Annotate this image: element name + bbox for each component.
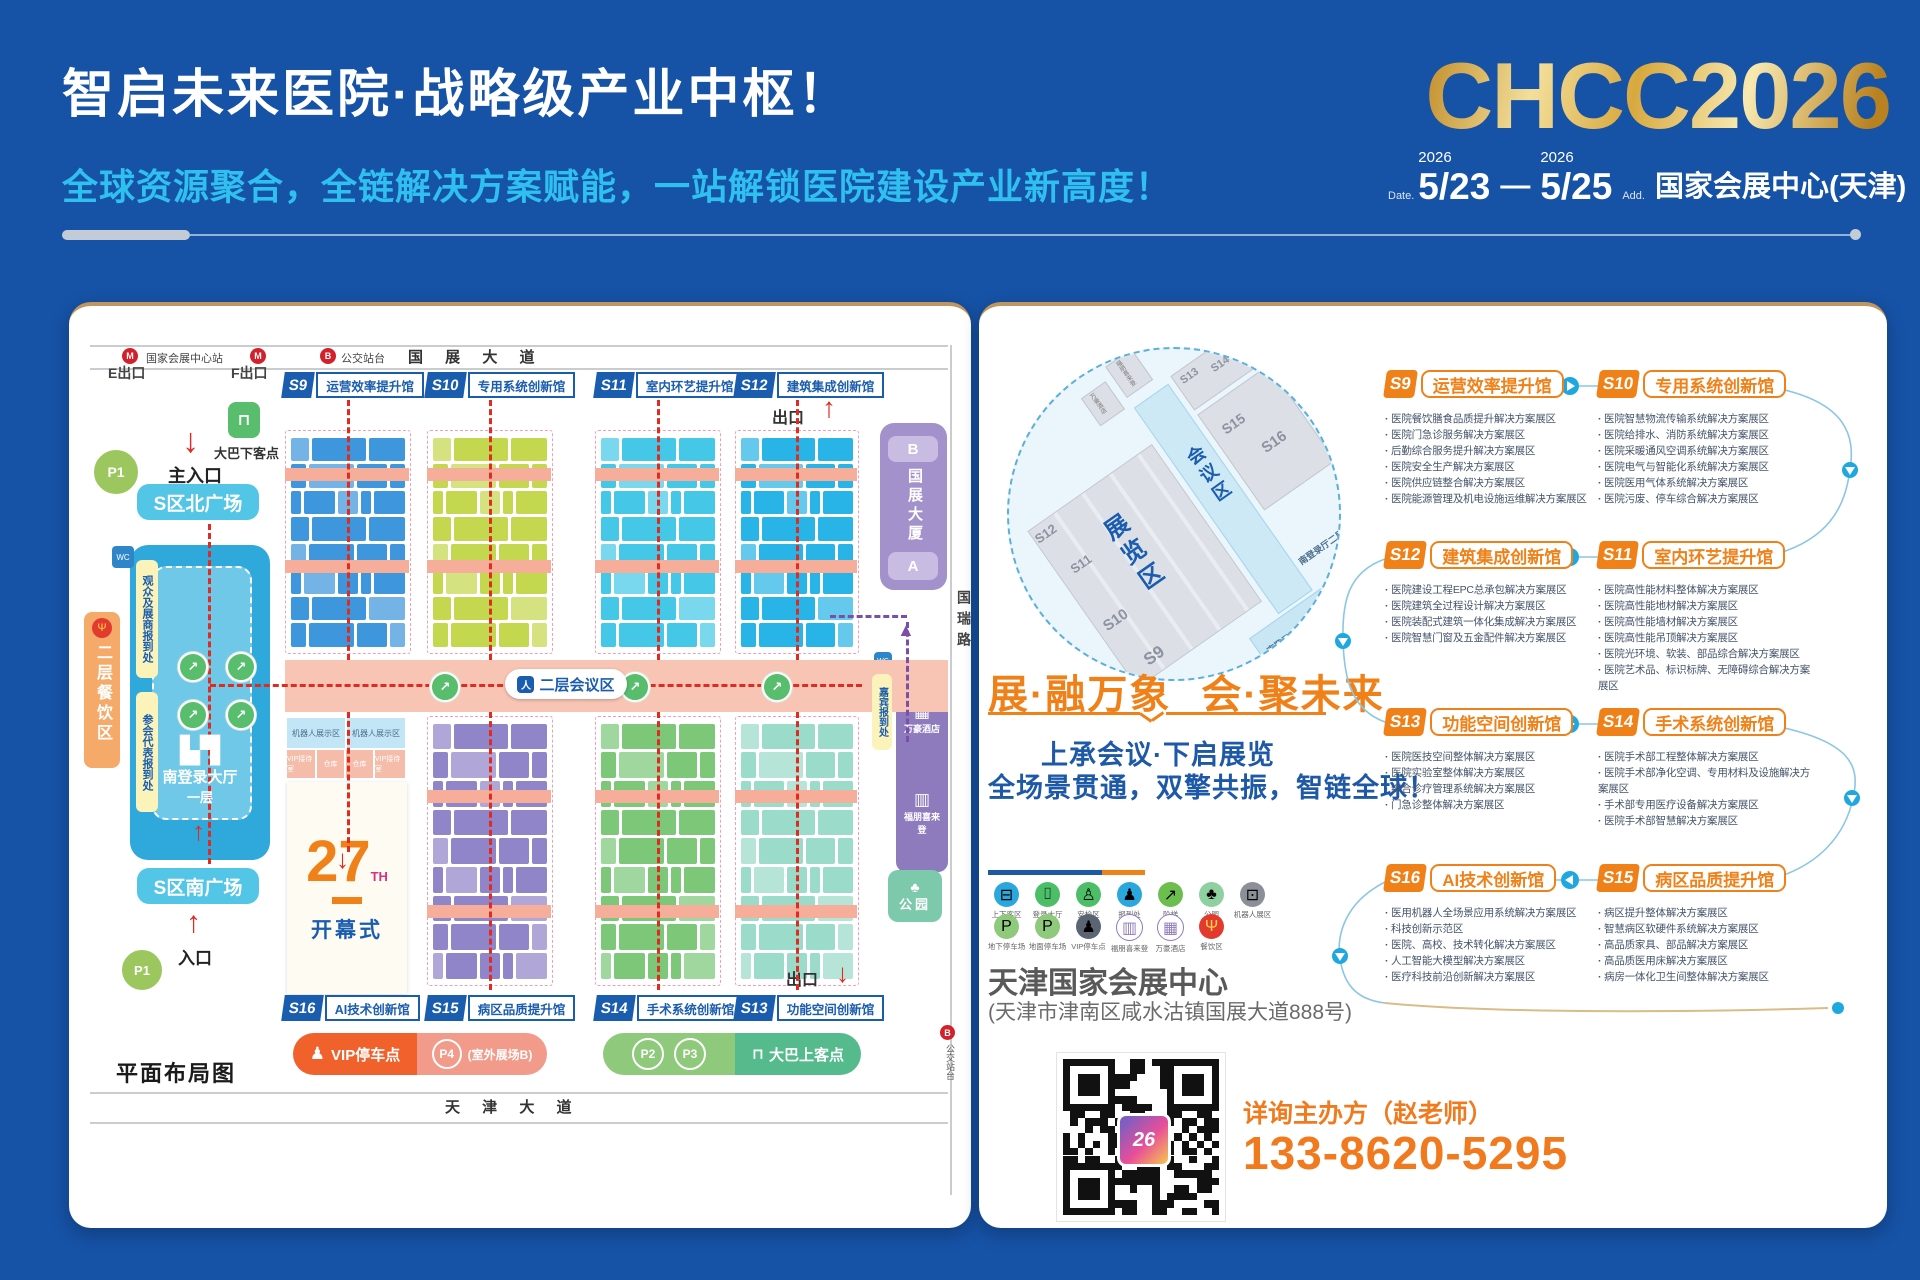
guest-route	[906, 622, 909, 742]
bus-drop-label: 大巴下客点	[214, 443, 279, 462]
toilet-icon: WC	[112, 546, 134, 568]
divider-bar	[62, 230, 190, 240]
escalator-icon: ↗	[226, 652, 256, 682]
route-arrow-up-icon: ↑	[192, 818, 205, 844]
escalator-icon: ↗	[762, 672, 792, 702]
bus-stop-right-label: 公交站台	[944, 1044, 957, 1080]
section-bullet: 医院安全生产解决方案展区	[1385, 459, 1597, 475]
p2-p3-legend: P2 P3	[603, 1033, 735, 1075]
contact-phone: 133-8620-5295	[1243, 1126, 1568, 1180]
vip-parking-icon: ♟	[1076, 914, 1101, 939]
section-bullet: 综合诊疗管理系统解决方案展区	[1385, 781, 1597, 797]
red-route	[796, 400, 799, 660]
section-bullet: 医院高性能吊顶解决方案展区	[1598, 630, 1810, 646]
page-subtitle: 全球资源聚合，全链解决方案赋能，一站解锁医院建设产业新高度！	[62, 158, 1172, 210]
security-check-icon: ♙	[1076, 882, 1101, 907]
south-hall-label: ▙▜ 南登录大厅 一层	[152, 735, 248, 806]
marriott-hotel-icon: ▦	[1157, 914, 1184, 941]
main-entrance-arrow-icon: ↓	[182, 424, 199, 458]
legend-divider-blue	[988, 870, 1102, 875]
section-bullet: 医院建设工程EPC总承包解决方案展区	[1385, 582, 1597, 598]
address-label: Add.	[1622, 190, 1645, 205]
login-hall-icon: ⌷	[1035, 882, 1060, 907]
visitor-checkin-label: 观众及展商报到处	[136, 560, 158, 678]
divider-dot	[1850, 229, 1861, 240]
section-bullet: 医院装配式建筑一体化集成解决方案展区	[1385, 614, 1597, 630]
section-s15: S15病区品质提升馆 病区提升整体解决方案展区智慧病区软硬件系统解决方案展区高品…	[1598, 864, 1810, 985]
date-separator: —	[1500, 169, 1530, 203]
section-bullet: 医院医技空间整体解决方案展区	[1385, 749, 1597, 765]
dining-area-block: Ψ 二层餐饮区	[84, 612, 120, 768]
section-bullet: 医院电气与智能化系统解决方案展区	[1598, 459, 1810, 475]
section-bullet: 医院手术部智慧解决方案展区	[1598, 813, 1810, 829]
opening-label: 开幕式	[311, 914, 383, 944]
pickup-zone-icon: ⊟	[994, 882, 1019, 907]
red-route	[657, 712, 660, 990]
hotel-marriott-label: 万豪酒店	[904, 722, 940, 735]
section-bullet: 医疗科技前沿创新解决方案展区	[1385, 969, 1597, 985]
event-dates: Date. 2026 5/23 — 2026 5/25 Add. 国家会展中心(…	[1388, 150, 1890, 205]
robot-zone-room: 机器人展示区	[287, 718, 345, 748]
escalator-icon: ↗	[178, 652, 208, 682]
hall-label-s14: S14 手术系统创新馆	[595, 995, 744, 1021]
section-bullet: 后勤综合服务提升解决方案展区	[1385, 443, 1597, 459]
section-bullet: 医院高性能地材解决方案展区	[1598, 598, 1810, 614]
entrance-arrow-icon: ↑	[186, 908, 201, 938]
underground-parking-icon: P	[994, 914, 1019, 939]
red-route	[489, 712, 492, 990]
bus-icon: ⊓	[752, 1045, 764, 1063]
hotel-icon: ▥	[902, 790, 942, 810]
escalator-icon: ↗	[226, 700, 256, 730]
tagline-2: 全场景贯通，双擎共振，智链全球！	[988, 766, 1328, 805]
icon-legend-row2: P地下停车场 P地面停车场 ♟VIP停车点 ▥福朋喜来登 ▦万豪酒店 Ψ餐饮区	[986, 914, 1232, 954]
top-road-line2	[90, 368, 948, 370]
p4-legend: P4 (室外展场B)	[417, 1033, 547, 1075]
opening-underline	[332, 897, 362, 904]
hotel-sheraton-label: 福朋喜来登	[902, 810, 942, 836]
exit-top-arrow-icon: ↑	[822, 394, 836, 422]
warehouse-room: 仓库	[317, 750, 344, 778]
section-bullet: 医院医用气体系统解决方案展区	[1598, 475, 1810, 491]
restaurant-icon: Ψ	[92, 618, 112, 638]
section-bullet: 医院智慧物流传输系统解决方案展区	[1598, 411, 1810, 427]
red-route	[796, 712, 799, 990]
qr-center-logo: 26	[1117, 1113, 1171, 1167]
section-bullet: 医院污废、停车综合解决方案展区	[1598, 491, 1810, 507]
bus-drop-icon: ⊓	[228, 402, 260, 438]
tower-name: 国展大厦	[904, 468, 925, 544]
entrance-label: 入口	[178, 944, 212, 969]
date-from: 5/23	[1418, 168, 1490, 205]
section-bullet: 科技创新示范区	[1385, 921, 1597, 937]
section-s13: S13功能空间创新馆 医院医技空间整体解决方案展区医院实验室整体解决方案展区综合…	[1385, 708, 1597, 813]
conference-area-pill: 人 二层会议区	[505, 669, 627, 699]
bus-pickup-legend: ⊓ 大巴上客点	[735, 1033, 861, 1075]
escalator-icon: ↗	[430, 672, 460, 702]
section-bullet: 医院手术部工程整体解决方案展区	[1598, 749, 1810, 765]
qr-code: 26	[1056, 1052, 1226, 1222]
exit-bottom-label: 出口	[786, 966, 818, 990]
section-s13-items: 医院医技空间整体解决方案展区医院实验室整体解决方案展区综合诊疗管理系统解决方案展…	[1385, 749, 1597, 813]
hall-label-s11: S11 室内环艺提升馆	[595, 372, 743, 398]
year-to: 2026	[1540, 150, 1612, 165]
north-plaza-pill: S区北广场	[137, 484, 259, 520]
section-s14: S14手术系统创新馆 医院手术部工程整体解决方案展区医院手术部净化空调、专用材料…	[1598, 708, 1810, 829]
section-bullet: 医院给排水、消防系统解决方案展区	[1598, 427, 1810, 443]
hall-label-s13: S13 功能空间创新馆	[735, 995, 884, 1021]
section-s14-items: 医院手术部工程整体解决方案展区医院手术部净化空调、专用材料及设施解决方案展区手术…	[1598, 749, 1810, 829]
park-block: ♣ 公园	[888, 870, 942, 922]
exit-e-label: E出口	[108, 363, 145, 383]
metro-icon: M	[250, 348, 266, 364]
dining-zone-icon: Ψ	[1199, 914, 1224, 939]
section-bullet: 医院供应链整合解决方案展区	[1385, 475, 1597, 491]
venue-short: 国家会展中心(天津)	[1655, 163, 1906, 205]
red-route	[208, 524, 211, 864]
section-bullet: 医院光环境、软装、部品综合解决方案展区	[1598, 646, 1810, 662]
guest-route	[830, 615, 907, 618]
tower-b-badge: B	[888, 436, 938, 462]
people-icon: 人	[517, 676, 534, 693]
legend-divider-orange	[1102, 870, 1145, 875]
section-bullet: 医院实验室整体解决方案展区	[1385, 765, 1597, 781]
bus-stop-icon: B	[940, 1025, 955, 1040]
hall-label-s12: S12 建筑集成创新馆	[735, 372, 884, 398]
section-s11: S11室内环艺提升馆 医院高性能材料整体解决方案展区医院高性能地材解决方案展区医…	[1598, 541, 1810, 694]
exit-f-label: F出口	[231, 363, 268, 383]
vip-person-icon: ♟	[310, 1044, 325, 1064]
guest-checkin-label: 嘉宾报到处	[872, 674, 892, 750]
robot-zone-room: 机器人展示区	[347, 718, 405, 748]
slogan-underline	[988, 712, 1140, 715]
date-label: Date.	[1388, 190, 1414, 205]
section-bullet: 医院采暖通风空调系统解决方案展区	[1598, 443, 1810, 459]
sheraton-hotel-icon: ▥	[1116, 914, 1143, 941]
section-bullet: 病房一体化卫生间整体解决方案展区	[1598, 969, 1810, 985]
section-bullet: 人工智能大模型解决方案展区	[1385, 953, 1597, 969]
hall-label-s10: S10 专用系统创新馆	[426, 372, 575, 398]
section-s15-items: 病区提升整体解决方案展区智慧病区软硬件系统解决方案展区高品质家具、部品解决方案展…	[1598, 905, 1810, 985]
tower-a-badge: A	[888, 552, 938, 580]
building-icon: ▙▜	[152, 735, 248, 766]
section-bullet: 医院高性能材料整体解决方案展区	[1598, 582, 1810, 598]
section-bullet: 医院智慧门窗及五金配件解决方案展区	[1385, 630, 1597, 646]
chcc-logo: CHCC2026	[1398, 42, 1890, 150]
section-bullet: 医院艺术品、标识标牌、无障碍综合解决方案展区	[1598, 662, 1810, 694]
surface-parking-icon: P	[1035, 914, 1060, 939]
section-bullet: 医院能源管理及机电设施运维解决方案展区	[1385, 491, 1597, 507]
hall-label-s9: S9 运营效率提升馆	[283, 372, 424, 398]
year-from: 2026	[1418, 150, 1490, 165]
section-s10: S10专用系统创新馆 医院智慧物流传输系统解决方案展区医院给排水、消防系统解决方…	[1598, 370, 1810, 507]
section-s12: S12建筑集成创新馆 医院建设工程EPC总承包解决方案展区医院建筑全过程设计解决…	[1385, 541, 1597, 646]
section-s12-items: 医院建设工程EPC总承包解决方案展区医院建筑全过程设计解决方案展区医院装配式建筑…	[1385, 582, 1597, 646]
hall-label-s15: S15 病区品质提升馆	[426, 995, 575, 1021]
section-s16-items: 医用机器人全场景应用系统解决方案展区科技创新示范区医院、高校、技术转化解决方案展…	[1385, 905, 1597, 985]
section-bullet: 门急诊整体解决方案展区	[1385, 797, 1597, 813]
poster: 智启未来医院·战略级产业中枢！ 全球资源聚合，全链解决方案赋能，一站解锁医院建设…	[0, 0, 1920, 1280]
bus-stop-label: 公交站台	[341, 350, 385, 366]
section-bullet: 病区提升整体解决方案展区	[1598, 905, 1810, 921]
section-bullet: 智慧病区软硬件系统解决方案展区	[1598, 921, 1810, 937]
p1-parking-icon: P1	[92, 448, 140, 496]
bottom-road-line	[90, 1092, 948, 1094]
bus-stop-icon: B	[320, 348, 336, 364]
hall-label-s16: S16 AI技术创新馆	[283, 995, 420, 1021]
top-road-name: 国 展 大 道	[408, 346, 544, 367]
contact-label: 详询主办方（赵老师）	[1243, 1094, 1493, 1130]
date-to: 5/25	[1540, 168, 1612, 205]
exit-top-label: 出口	[772, 404, 804, 428]
section-bullet: 手术部专用医疗设备解决方案展区	[1598, 797, 1810, 813]
section-bullet: 医院高性能墙材解决方案展区	[1598, 614, 1810, 630]
red-route	[347, 400, 350, 660]
section-s16: S16AI技术创新馆 医用机器人全场景应用系统解决方案展区科技创新示范区医院、高…	[1385, 864, 1597, 985]
section-s9: S9运营效率提升馆 医院餐饮膳食品质提升解决方案展区医院门急诊服务解决方案展区后…	[1385, 370, 1597, 507]
metro-station-label: 国家会展中心站	[146, 350, 223, 366]
section-bullet: 医院餐饮膳食品质提升解决方案展区	[1385, 411, 1597, 427]
section-bullet: 高品质家具、部品解决方案展区	[1598, 937, 1810, 953]
south-plaza-pill: S区南广场	[137, 868, 259, 904]
section-s9-items: 医院餐饮膳食品质提升解决方案展区医院门急诊服务解决方案展区后勤综合服务提升解决方…	[1385, 411, 1597, 507]
vip-parking-legend: ♟ VIP停车点	[293, 1033, 417, 1075]
exit-bottom-arrow-icon: ↓	[836, 960, 849, 986]
section-bullet: 医用机器人全场景应用系统解决方案展区	[1385, 905, 1597, 921]
section-bullet: 医院门急诊服务解决方案展区	[1385, 427, 1597, 443]
escalator-icon: ↗	[178, 700, 208, 730]
vip-room: VIP接待室	[287, 750, 315, 778]
slogan-underline	[1166, 712, 1326, 715]
vip-room: VIP接待室	[375, 750, 405, 778]
section-bullet: 医院、高校、技术转化解决方案展区	[1385, 937, 1597, 953]
red-route	[657, 400, 660, 660]
red-route	[347, 712, 350, 852]
route-arrow-down-icon: ↓	[336, 846, 349, 872]
robot-zone-icon: ⊡	[1240, 882, 1265, 907]
section-bullet: 医院手术部净化空调、专用材料及设施解决方案展区	[1598, 765, 1810, 797]
warehouse-room: 仓库	[346, 750, 373, 778]
park-icon: ♣	[1199, 882, 1224, 907]
venue-overview-circle: 展览区 S12 S11 S10 S9 会议区 S13 S14 S15 S16 南…	[1007, 347, 1341, 681]
bottom-road-line2	[90, 1122, 948, 1124]
p1-parking-icon: P1	[120, 948, 164, 992]
divider-line	[190, 234, 1852, 236]
venue-address: (天津市津南区咸水沽镇国展大道888号)	[988, 996, 1352, 1026]
section-bullet: 医院建筑全过程设计解决方案展区	[1385, 598, 1597, 614]
section-bullet: 高品质医用床解决方案展区	[1598, 953, 1810, 969]
page-title: 智启未来医院·战略级产业中枢！	[62, 52, 852, 127]
section-s10-items: 医院智慧物流传输系统解决方案展区医院给排水、消防系统解决方案展区医院采暖通风空调…	[1598, 411, 1810, 507]
plan-title: 平面布局图	[116, 1056, 236, 1088]
red-route	[489, 400, 492, 660]
bottom-road-name: 天 津 大 道	[445, 1096, 581, 1117]
park-tree-icon: ♣	[910, 880, 919, 894]
stairs-icon: ↗	[1158, 882, 1183, 907]
right-road-name: 国瑞路	[954, 590, 974, 653]
metro-icon: M	[122, 348, 138, 364]
section-s11-items: 医院高性能材料整体解决方案展区医院高性能地材解决方案展区医院高性能墙材解决方案展…	[1598, 582, 1810, 694]
checkin-icon: ♟	[1117, 882, 1142, 907]
